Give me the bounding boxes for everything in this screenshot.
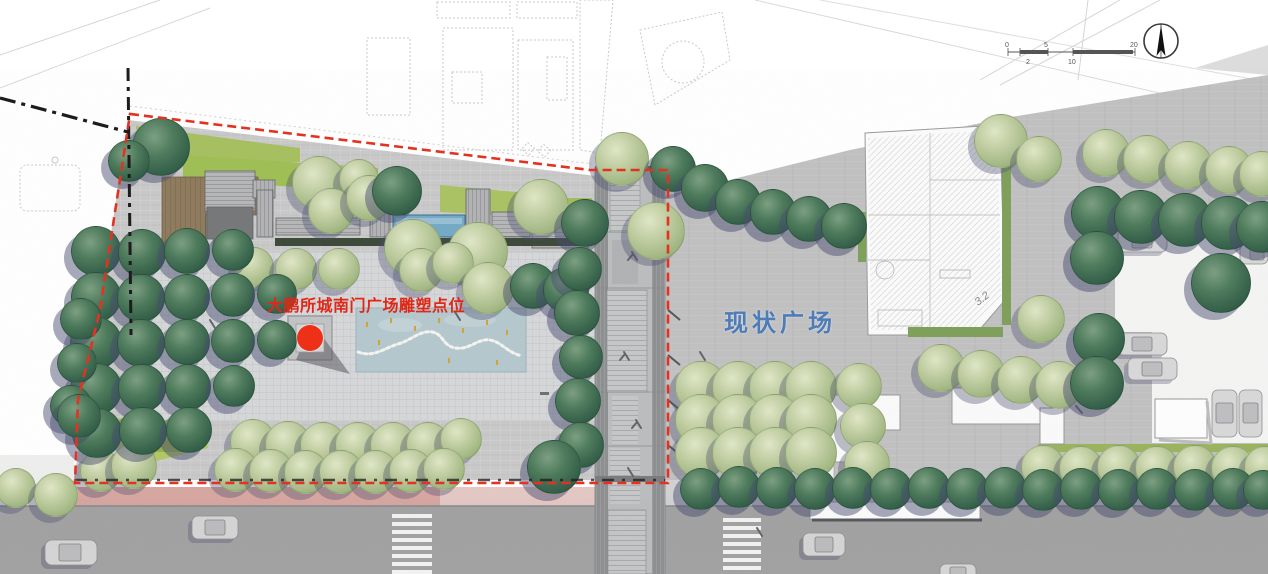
scale-bar: 0 2 5 10 20 [1005,42,1138,66]
scale-tick: 20 [1130,42,1138,49]
sculpture-point-label: 大鹏所城南门广场雕塑点位 [267,292,465,316]
overlay-annotations: 0 2 5 10 20 [0,0,1268,574]
scale-tick: 0 [1005,42,1009,49]
scale-tick: 10 [1068,59,1076,66]
sculpture-point-marker [297,325,323,351]
property-line [0,68,665,480]
existing-plaza-label: 现状广场 [724,303,836,338]
scale-tick: 5 [1044,42,1048,49]
site-plan-canvas: 3.2 [0,0,1268,574]
north-arrow-icon [1144,24,1178,58]
scale-tick: 2 [1026,59,1030,66]
